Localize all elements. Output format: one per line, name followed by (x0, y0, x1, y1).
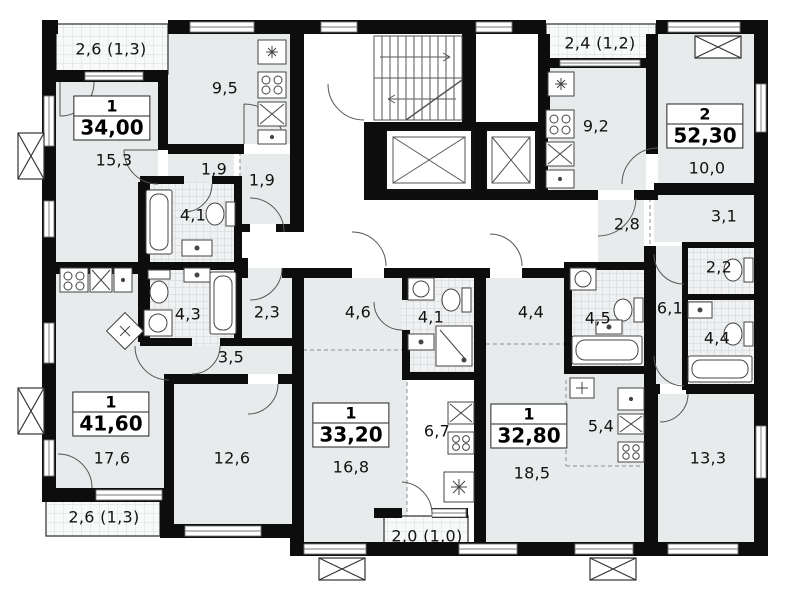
vent-fan-icon (258, 40, 286, 64)
stove-icon (60, 268, 88, 292)
apartment-rooms-count: 1 (73, 393, 148, 413)
stove-icon (618, 442, 644, 462)
apartment-rooms-count: 1 (491, 405, 566, 425)
bathtub-icon (146, 190, 172, 254)
washing-machine-icon (570, 268, 596, 290)
elevator-icon (386, 130, 472, 190)
room-area-label: 15,3 (96, 151, 133, 170)
elevator-icon (486, 130, 536, 190)
toilet-icon (148, 270, 170, 303)
stairs-icon (374, 36, 462, 120)
sink-icon (408, 334, 434, 350)
toilet-icon (206, 202, 235, 226)
vent-fan-icon (548, 72, 574, 96)
stove-icon (546, 110, 574, 138)
balcony-area-label: 2,6 (1,3) (68, 508, 139, 527)
kitchen-sink-icon (546, 142, 574, 166)
kitchen-sink-icon (618, 414, 644, 434)
shower-icon (436, 326, 472, 366)
room-area-label: 5,4 (588, 417, 614, 436)
bathtub-icon (572, 336, 642, 364)
room-area-label: 4,4 (704, 329, 730, 348)
balcony-area-label: 2,4 (1,2) (564, 34, 635, 53)
room-area-label: 4,6 (345, 303, 371, 322)
room-area-label: 9,5 (212, 79, 238, 98)
room-area-label: 4,5 (585, 309, 611, 328)
room-area-label: 12,6 (214, 449, 251, 468)
cabinet-icon (546, 170, 574, 188)
vent-shaft-icon (695, 36, 741, 58)
apartment-total-area: 33,20 (313, 424, 388, 447)
room-area-label: 4,4 (518, 303, 544, 322)
vent-shaft-icon (18, 133, 44, 179)
apartment-total-area: 52,30 (667, 125, 742, 148)
cabinet-icon (114, 268, 132, 292)
apartment-badge: 1 34,00 (73, 96, 150, 141)
apartment-total-area: 34,00 (74, 117, 149, 140)
room-area-label: 1,9 (201, 160, 227, 179)
apartment-badge: 1 32,80 (490, 404, 567, 449)
room-area-label: 10,0 (689, 159, 726, 178)
apartment-rooms-count: 1 (74, 97, 149, 117)
sink-icon (688, 302, 712, 318)
elevators (386, 130, 536, 190)
washing-machine-icon (144, 310, 172, 336)
room-area-label: 6,7 (424, 422, 450, 441)
apartment-badge: 2 52,30 (666, 104, 743, 149)
floor-plan: 1 34,00 1 41,60 1 33,20 1 32,80 2 52,30 … (0, 0, 790, 600)
room-area-label: 3,1 (711, 207, 737, 226)
room-area-label: 18,5 (514, 464, 551, 483)
washing-machine-icon (408, 278, 434, 300)
apartment-total-area: 41,60 (73, 413, 148, 436)
apartment-rooms-count: 1 (313, 404, 388, 424)
toilet-icon (614, 298, 643, 322)
apartment-badge: 1 33,20 (312, 403, 389, 448)
room-area-label: 2,2 (706, 258, 732, 277)
room-area-label: 13,3 (690, 449, 727, 468)
cabinet-icon (258, 130, 286, 144)
room-area-label: 17,6 (94, 449, 131, 468)
balcony-area-label: 2,6 (1,3) (75, 40, 146, 59)
sink-icon (182, 240, 212, 256)
bathtub-icon (688, 356, 752, 382)
cabinet-icon (618, 388, 644, 410)
room-area-label: 4,1 (180, 206, 206, 225)
vent-fan-icon (570, 378, 594, 398)
apartment-total-area: 32,80 (491, 425, 566, 448)
sink-icon (184, 268, 210, 282)
kitchen-sink-icon (448, 402, 474, 424)
room-area-label: 6,1 (657, 299, 683, 318)
apartment-badge: 1 41,60 (72, 392, 149, 437)
room-area-label: 2,8 (614, 215, 640, 234)
vent-shaft-icon (18, 388, 44, 434)
toilet-icon (442, 288, 471, 312)
room-area-label: 2,3 (254, 303, 280, 322)
balcony-area-label: 2,0 (1,0) (391, 527, 462, 546)
kitchen-sink-icon (258, 102, 286, 126)
vent-shaft-icon (319, 558, 365, 580)
room-area-label: 9,2 (583, 117, 609, 136)
apartment-rooms-count: 2 (667, 105, 742, 125)
bathtub-icon (210, 272, 236, 334)
room-area-label: 3,5 (218, 348, 244, 367)
room-area-label: 4,1 (418, 308, 444, 327)
fridge-icon (444, 472, 474, 502)
room-area-label: 16,8 (333, 458, 370, 477)
kitchen-sink-icon (90, 268, 112, 292)
stove-icon (258, 72, 286, 98)
stove-icon (448, 432, 474, 454)
vent-shaft-icon (590, 558, 636, 580)
room-area-label: 4,3 (175, 305, 201, 324)
room-area-label: 1,9 (249, 171, 275, 190)
